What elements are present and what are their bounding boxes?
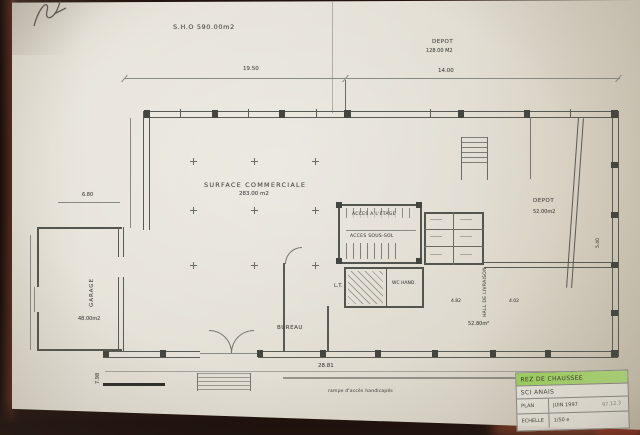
plan-row-note: 97.12.3 [602,400,628,409]
plan-row-label: PLAN [517,399,549,414]
heavy-line-bottom-left [103,383,165,386]
scale-row-label: ECHELLE [517,414,549,429]
stair-side-line [487,137,488,180]
lt-label: L.T. [334,284,342,289]
column-mark [312,158,319,165]
pier [320,350,326,357]
pier [160,350,166,357]
wc-hand-label: WC HAND. [392,282,416,287]
pier [144,110,150,118]
garage-wall-left-upper [37,227,39,287]
dim-6-80: 6.80 [82,193,93,198]
lt-room-hatch [348,271,383,304]
column-mark [312,207,319,214]
pier [103,350,109,357]
pier [611,162,618,168]
sanitary-divider-h2 [424,246,484,247]
sanitary-divider-v [453,212,454,265]
handwritten-scribble [26,0,70,30]
pier [416,258,422,264]
dimension-line-garage-left [30,235,31,350]
pier [611,310,618,316]
stair-treads-topright [461,137,487,163]
scale-row-value: 1/50 e [549,415,628,423]
window-tick [316,109,317,118]
pier [336,202,342,208]
dimension-line-left [130,118,131,228]
pier [257,350,263,357]
window-tick [430,109,431,118]
bureau-wall [283,263,285,352]
client-name: SCI ANAIS [517,388,555,396]
wall-south-right [258,351,618,358]
hall-livraison-label: HALL DE LIVRAISON [484,267,489,317]
depot-top-area: 128.00 M2 [426,49,453,54]
column-mark [251,262,258,269]
window-tick [248,109,249,118]
surface-commerciale-label: SURFACE COMMERCIALE [204,182,306,189]
ramp-note: rampe d'accès handicapés [328,390,393,395]
photo-of-floor-plan: S.H.O 590.00m2 DEPOT 128.00 M2 19.50 14.… [0,0,640,435]
dimension-line-garage-top [58,202,120,203]
title-block: REZ DE CHAUSSEE SCI ANAIS PLAN JUIN 1997… [515,369,630,431]
depot-right-label: DEPOT [533,199,554,205]
title-block-scale-row: ECHELLE 1/50 e [517,411,628,428]
column-mark [251,207,258,214]
pier [611,212,618,218]
hall-livraison-area: 52.80m² [468,322,489,327]
pier [611,262,618,268]
column-mark [251,158,258,165]
tiny-text-smudge [430,236,442,237]
tiny-text-smudge [460,254,472,255]
garage-label: GARAGE [90,278,96,307]
tiny-text-smudge [430,254,442,255]
entrance-ramp-stripes [197,373,251,391]
wall-west-upper [143,111,150,230]
column-mark [190,158,197,165]
window-tick [180,109,181,118]
depot-right-area: 52.00m2 [533,210,555,215]
dim-4-82: 4.82 [451,300,461,305]
column-mark [190,207,197,214]
bureau-label: BUREAU [277,326,303,332]
garage-wall-bottom [37,349,122,351]
pier [545,350,551,357]
garage-area: 48.00m2 [78,317,100,322]
paper-sheet [12,0,640,435]
garage-wall-left-lower [37,312,39,351]
stairs-up-label: ACCES A L'ETAGE [352,213,396,218]
paper-crease-vertical [332,2,333,113]
surface-commerciale-area: 283.00 m2 [239,192,269,198]
corridor-wall [327,306,329,352]
entrance-sill [200,353,258,354]
dim-19-50: 19.50 [243,67,259,73]
stairs-down-label: ACCES SOUS-SOL [350,235,394,240]
wall-east [612,111,619,357]
dim-4-02: 4.02 [509,300,519,305]
garage-wall-top [37,227,122,229]
pier [212,110,218,118]
pier [490,350,496,357]
tiny-text-smudge [460,219,472,220]
phase-title: REZ DE CHAUSSEE [516,374,583,383]
dim-7-98: 7.98 [96,373,101,384]
tiny-text-smudge [460,236,472,237]
hall-north-wall [484,262,612,268]
stair-landing-line [346,230,416,231]
wc-divider [386,267,387,308]
pier [336,258,342,264]
tiny-text-smudge [430,219,442,220]
wall-south-left [103,351,200,358]
garage-wall-right-lower [118,277,124,351]
pier [432,350,438,357]
plan-row-value: JUIN 1997 [549,401,602,408]
pier [458,110,464,118]
sanitary-divider-h1 [424,229,484,230]
dim-14-00: 14.00 [438,69,454,75]
garage-door-line [34,287,35,312]
dim-28-81: 28.81 [318,364,334,370]
column-mark [312,262,319,269]
column-mark [190,262,197,269]
pier [611,110,618,118]
garage-wall-right-upper [118,227,124,257]
dim-5-40: 5.40 [597,238,602,248]
party-wall-stub [345,80,346,113]
pier [375,350,381,357]
pier [611,350,618,357]
interior-wall-line [530,117,531,179]
pier [344,110,351,118]
depot-top-label: DEPOT [432,40,453,46]
stair-side-line [461,137,462,180]
pier [416,202,422,208]
pier [279,110,285,118]
window-tick [570,109,571,118]
dimension-line-top [125,78,620,79]
stair-treads-lower [346,243,402,259]
sho-label: S.H.O 590.00m2 [173,24,235,31]
